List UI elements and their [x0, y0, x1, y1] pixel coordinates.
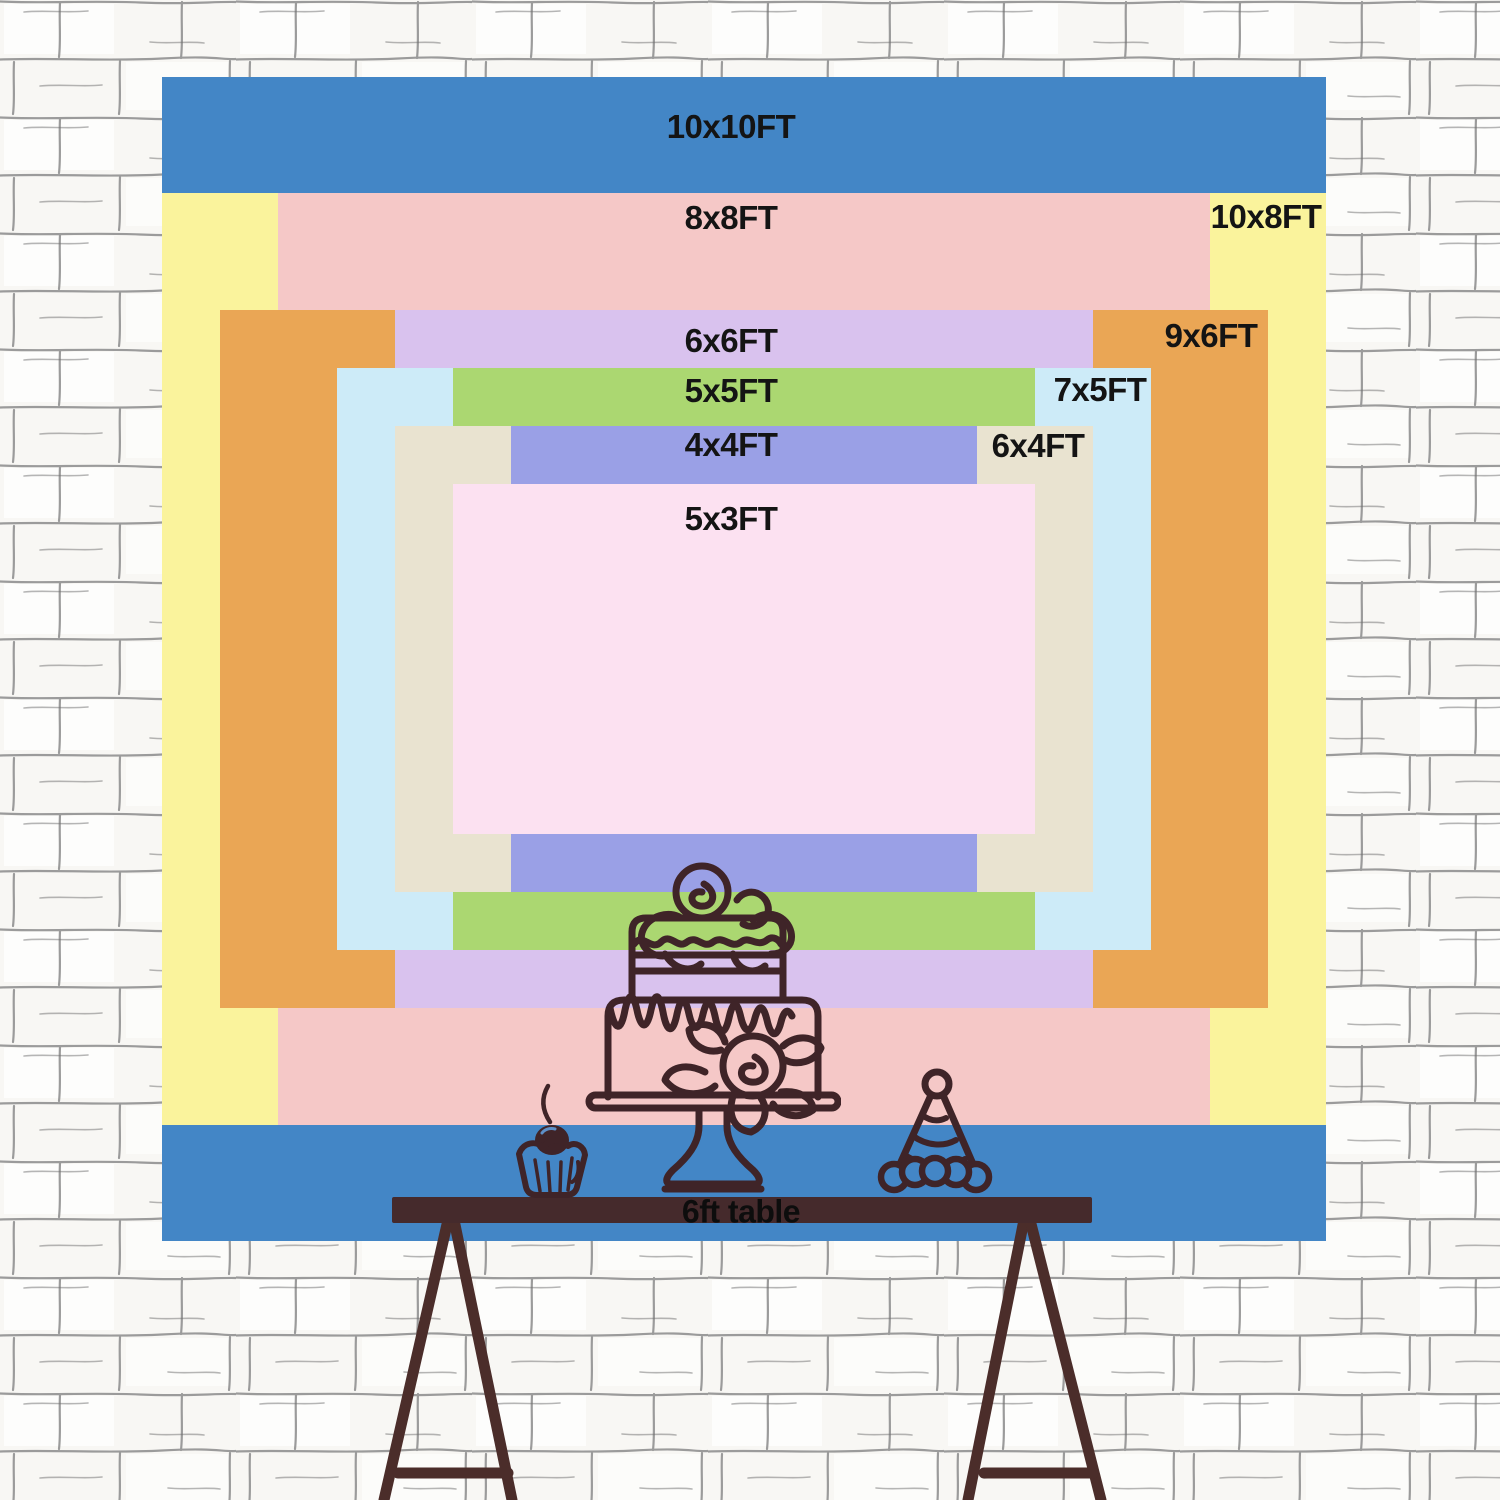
- table-length-label: 6ft table: [682, 1194, 800, 1231]
- size-rect-5x3ft: [453, 484, 1035, 833]
- hat-brim: [881, 1158, 989, 1190]
- table-legs: [330, 1196, 1150, 1500]
- cupcake-icon: [505, 1078, 597, 1198]
- cake-icon: [585, 858, 841, 1198]
- backdrop-size-chart: 10x10FT10x8FT8x8FT9x6FT6x6FT7x5FT5x5FT6x…: [0, 0, 1500, 1500]
- party-hat-icon: [872, 1058, 996, 1198]
